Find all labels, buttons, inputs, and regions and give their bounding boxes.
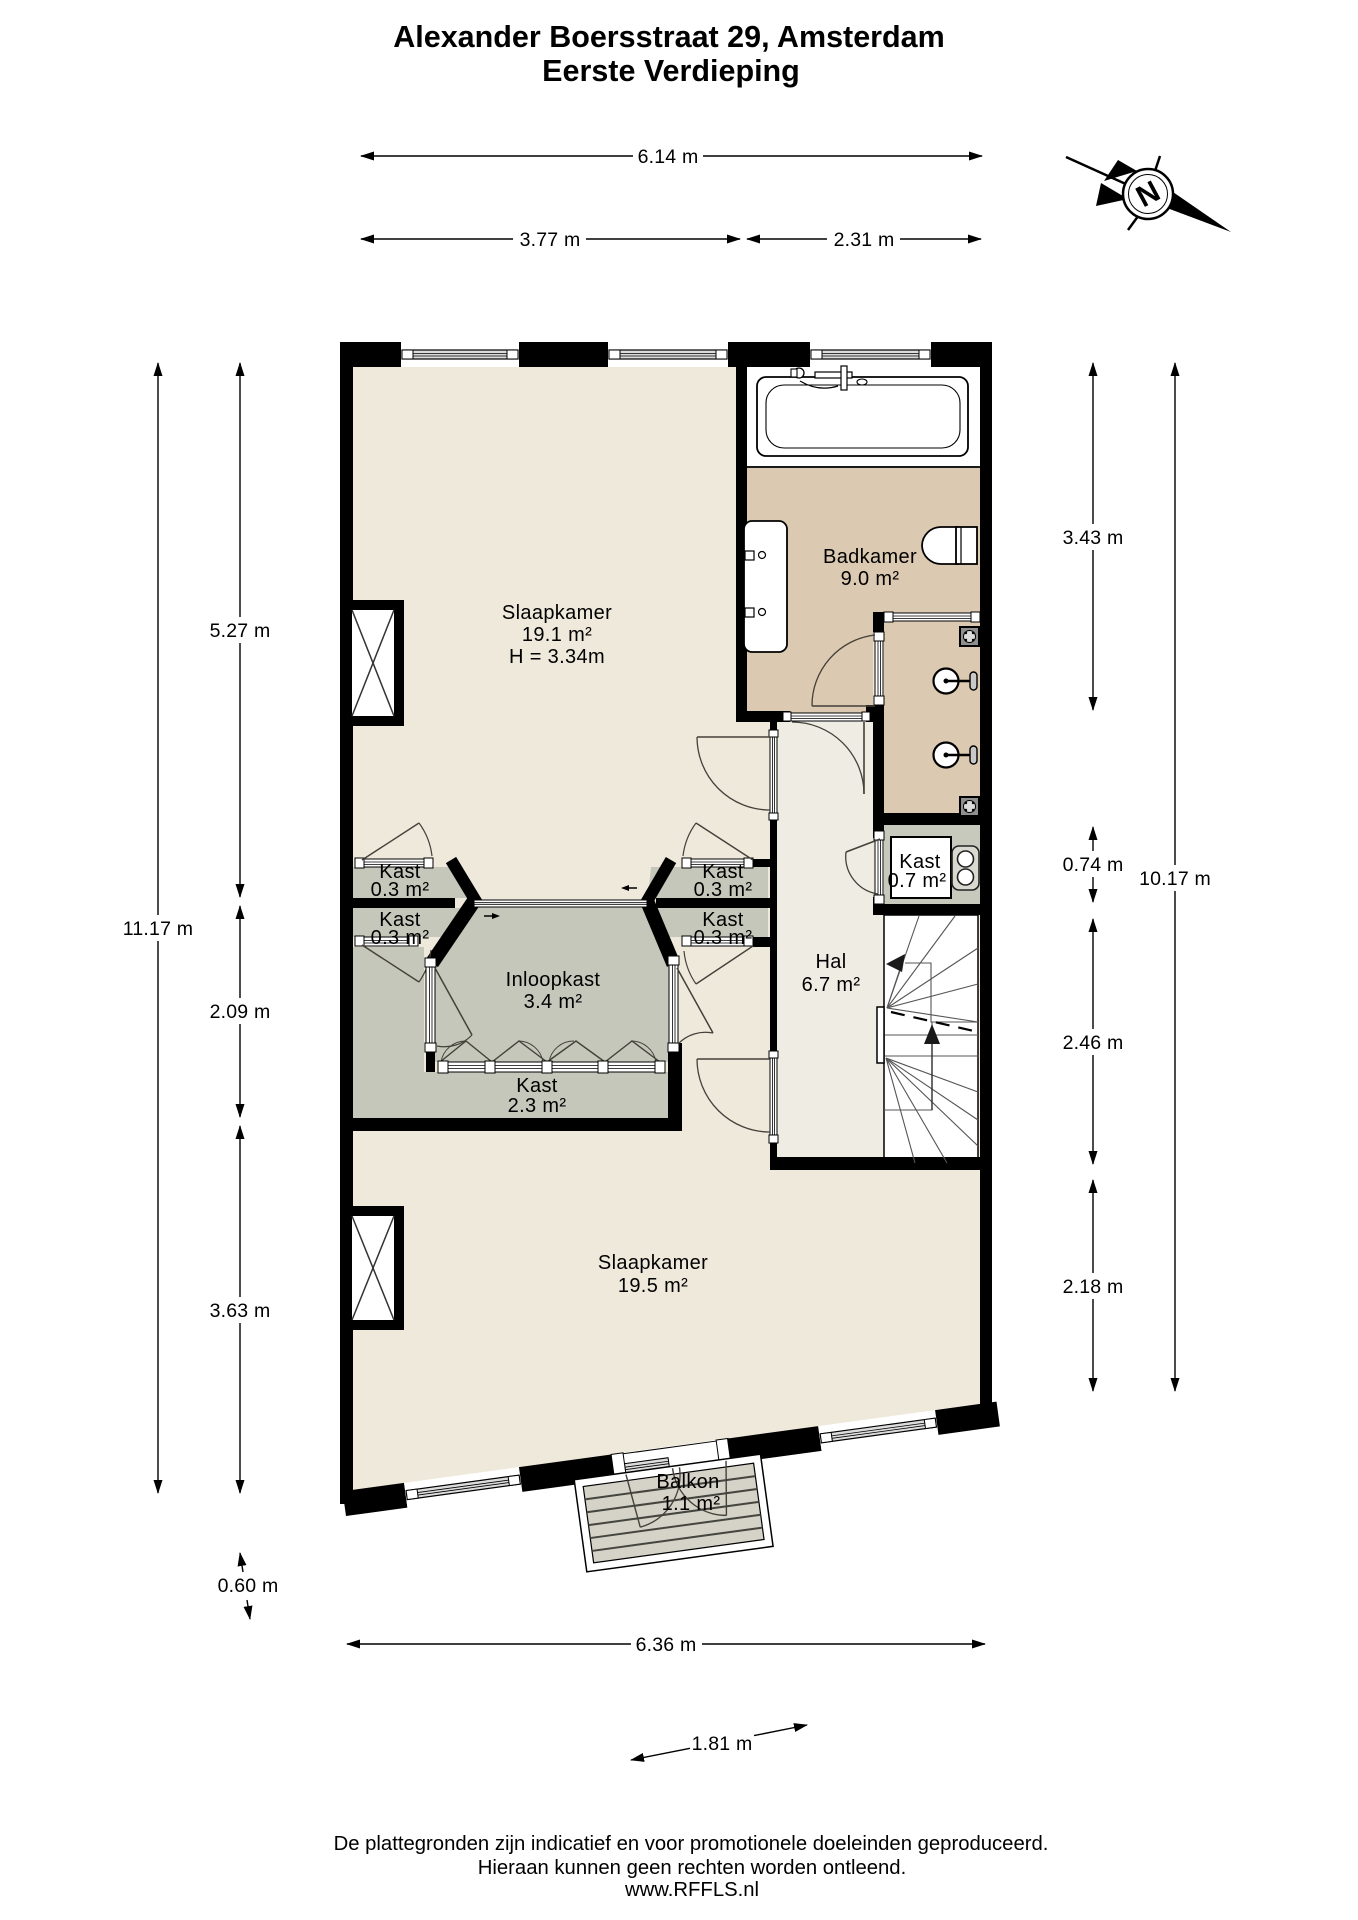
svg-text:Hieraan kunnen geen rechten wo: Hieraan kunnen geen rechten worden ontle… [478,1857,906,1879]
svg-text:0.7 m²: 0.7 m² [888,870,947,892]
svg-text:2.31 m: 2.31 m [834,229,895,251]
svg-text:1.81 m: 1.81 m [692,1733,753,1755]
svg-text:0.3 m²: 0.3 m² [371,879,430,901]
svg-text:6.7 m²: 6.7 m² [802,974,861,996]
svg-text:Kast: Kast [516,1075,558,1097]
svg-text:5.27 m: 5.27 m [210,620,271,642]
svg-text:Balkon: Balkon [656,1471,719,1493]
svg-text:1.1 m²: 1.1 m² [662,1493,721,1515]
svg-text:Slaapkamer: Slaapkamer [598,1252,708,1274]
svg-text:Hal: Hal [815,951,846,973]
svg-text:19.5 m²: 19.5 m² [618,1275,688,1297]
svg-text:11.17 m: 11.17 m [123,918,193,940]
svg-text:0.3 m²: 0.3 m² [371,927,430,949]
svg-text:De plattegronden zijn indicati: De plattegronden zijn indicatief en voor… [334,1833,1049,1855]
svg-text:6.14 m: 6.14 m [638,146,699,168]
svg-text:0.3 m²: 0.3 m² [694,879,753,901]
svg-text:0.3 m²: 0.3 m² [694,927,753,949]
svg-text:Inloopkast: Inloopkast [506,969,601,991]
svg-text:9.0 m²: 9.0 m² [841,568,900,590]
svg-text:2.46 m: 2.46 m [1063,1032,1124,1054]
svg-text:Alexander Boersstraat 29, Amst: Alexander Boersstraat 29, Amsterdam [393,20,945,54]
svg-text:10.17 m: 10.17 m [1139,868,1211,890]
svg-text:0.60 m: 0.60 m [218,1575,279,1597]
svg-text:3.77 m: 3.77 m [520,229,581,251]
svg-text:2.09 m: 2.09 m [210,1001,271,1023]
svg-text:3.4 m²: 3.4 m² [524,991,583,1013]
svg-text:0.74 m: 0.74 m [1063,854,1124,876]
svg-text:2.18 m: 2.18 m [1063,1276,1124,1298]
svg-text:2.3 m²: 2.3 m² [508,1095,567,1117]
svg-text:Eerste Verdieping: Eerste Verdieping [542,54,800,88]
svg-text:6.36 m: 6.36 m [636,1634,697,1656]
svg-text:Slaapkamer: Slaapkamer [502,602,612,624]
svg-text:www.RFFLS.nl: www.RFFLS.nl [624,1879,759,1901]
svg-text:H = 3.34m: H = 3.34m [509,646,605,668]
svg-text:19.1 m²: 19.1 m² [522,624,592,646]
svg-text:3.63 m: 3.63 m [210,1300,271,1322]
svg-text:3.43 m: 3.43 m [1063,527,1124,549]
svg-text:Badkamer: Badkamer [823,546,917,568]
